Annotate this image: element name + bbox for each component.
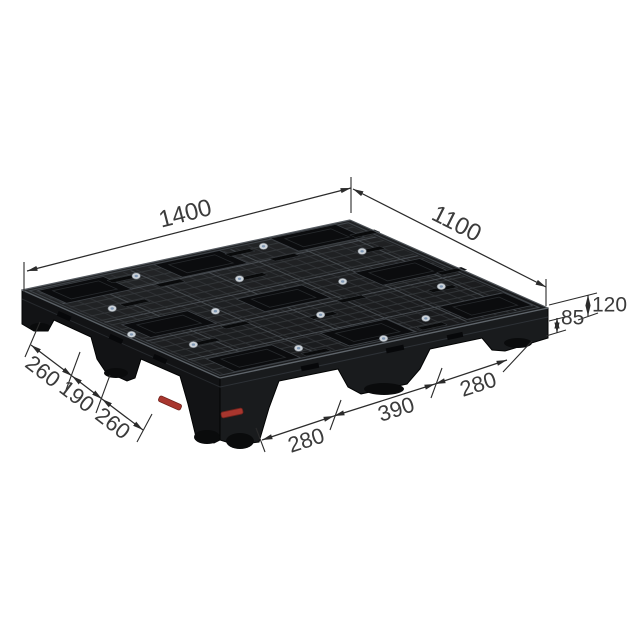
rivet-center [341, 280, 344, 282]
rivet-center [297, 347, 300, 349]
rivet-center [192, 343, 195, 345]
rivet-center [130, 333, 133, 335]
dim-label-1100: 1100 [427, 200, 485, 247]
rivet-center [360, 250, 363, 252]
dim-label-280b: 280 [457, 367, 500, 402]
rivet-center [135, 275, 138, 277]
pallet-dimension-diagram: 1400 1100 85 120 260 190 260 280 390 280 [0, 0, 640, 640]
dim-label-390: 390 [375, 392, 418, 427]
dim-label-260a: 260 [21, 350, 65, 392]
rivet-center [238, 278, 241, 280]
rivet-center [424, 317, 427, 319]
rivet-center [440, 285, 443, 287]
rivet-center [214, 310, 217, 312]
isometric-pallet-drawing: 1400 1100 85 120 260 190 260 280 390 280 [0, 0, 640, 640]
dim-label-85: 85 [561, 306, 584, 329]
rivet-center [319, 314, 322, 316]
red-tag-left [158, 395, 182, 410]
dim-label-280a: 280 [285, 423, 328, 458]
rivet-center [111, 307, 114, 309]
dim-label-120: 120 [592, 293, 627, 316]
rivet-center [382, 337, 385, 339]
dim-label-1400: 1400 [156, 194, 214, 233]
dim-label-190: 190 [55, 375, 99, 417]
rivet-center [262, 245, 265, 247]
